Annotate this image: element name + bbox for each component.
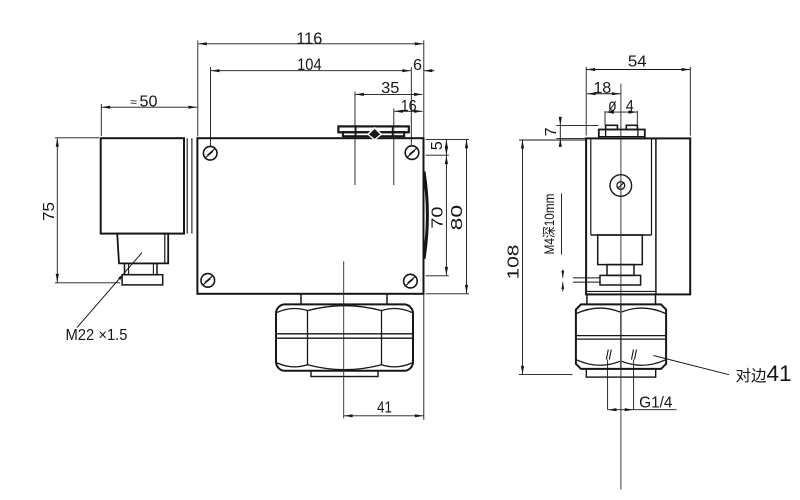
svg-text:41: 41 [377, 400, 392, 417]
svg-text:5: 5 [429, 141, 446, 150]
svg-text:35: 35 [381, 80, 399, 97]
svg-text:M22 ×1.5: M22 ×1.5 [66, 327, 128, 344]
svg-text:4: 4 [626, 98, 634, 115]
svg-text:75: 75 [41, 202, 58, 221]
svg-text:16: 16 [401, 98, 417, 115]
svg-text:104: 104 [297, 55, 322, 74]
svg-text:54: 54 [628, 54, 647, 71]
svg-text:70: 70 [429, 206, 446, 228]
svg-text:116: 116 [296, 29, 322, 48]
svg-text:M4深10mm: M4深10mm [542, 194, 557, 255]
svg-text:108: 108 [506, 245, 523, 280]
svg-text:≈: ≈ [130, 95, 137, 109]
svg-text:50: 50 [140, 93, 158, 110]
svg-text:7: 7 [543, 127, 560, 136]
svg-text:80: 80 [449, 204, 466, 230]
svg-text:G1/4: G1/4 [639, 395, 673, 412]
svg-text:6: 6 [413, 57, 422, 74]
svg-text:ø: ø [608, 95, 617, 115]
